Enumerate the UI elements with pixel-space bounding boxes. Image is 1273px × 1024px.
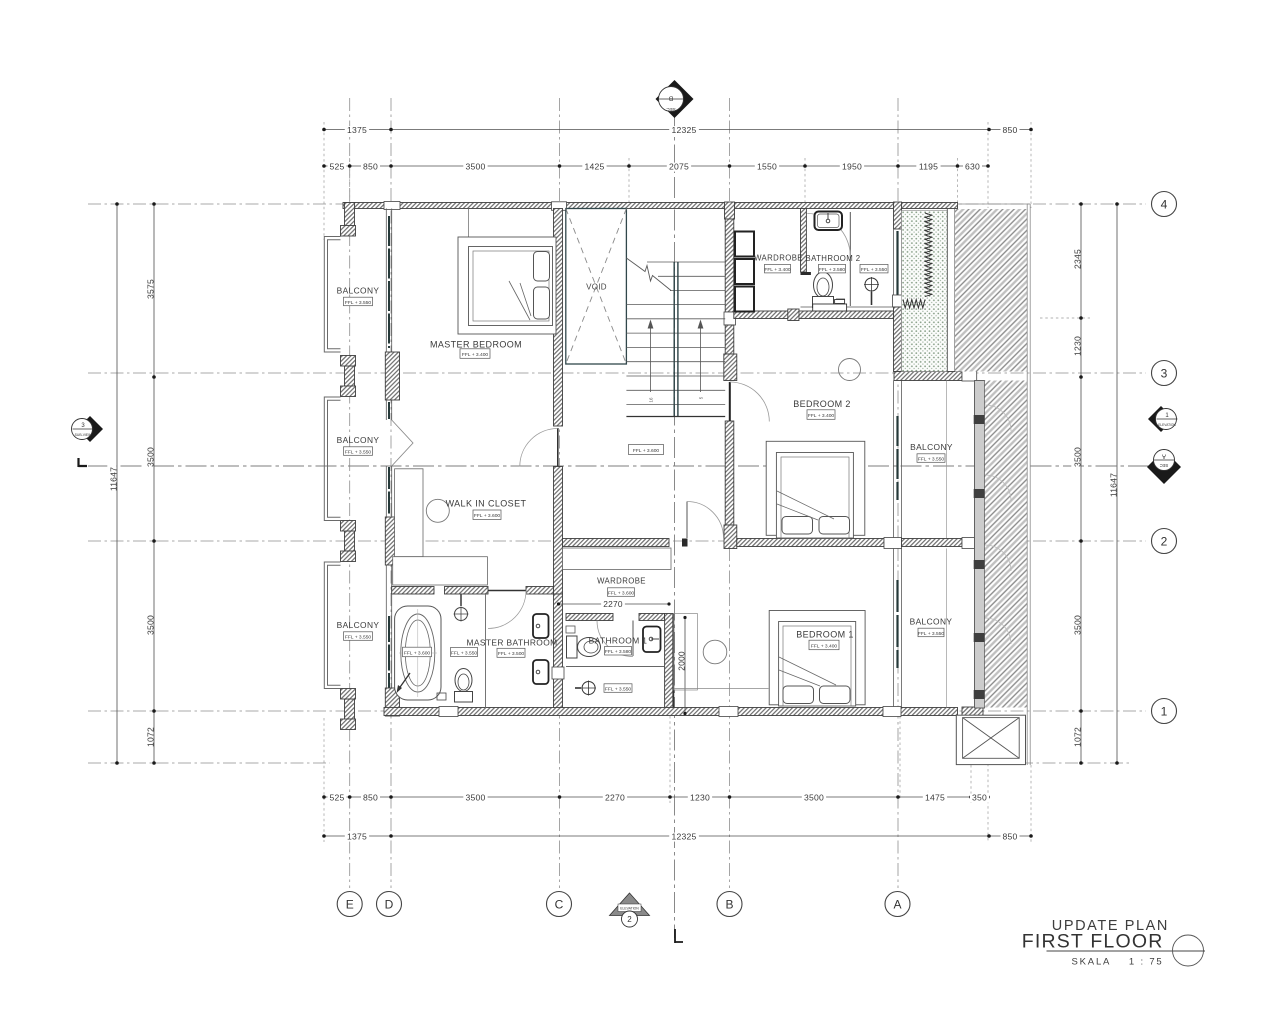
svg-text:1: 1: [1161, 704, 1168, 718]
svg-text:3575: 3575: [146, 279, 156, 299]
svg-text:A: A: [1162, 453, 1166, 459]
svg-text:FFL + 3.550: FFL + 3.550: [345, 300, 372, 306]
svg-text:3500: 3500: [1073, 447, 1083, 467]
svg-text:3500: 3500: [1073, 615, 1083, 635]
svg-text:FFL + 3.600: FFL + 3.600: [474, 513, 501, 519]
svg-text:ELEVATION: ELEVATION: [1158, 423, 1176, 427]
svg-text:850: 850: [1003, 831, 1018, 841]
svg-text:11647: 11647: [109, 467, 119, 491]
svg-text:WARDROBE: WARDROBE: [754, 254, 803, 263]
svg-text:11647: 11647: [1109, 473, 1119, 497]
svg-text:FFL + 3.550: FFL + 3.550: [345, 634, 372, 640]
svg-text:MASTER BATHROOM: MASTER BATHROOM: [467, 638, 558, 648]
svg-text:1425: 1425: [585, 161, 605, 171]
svg-text:12325: 12325: [672, 831, 697, 841]
svg-text:B: B: [669, 95, 673, 102]
svg-text:1375: 1375: [347, 831, 367, 841]
svg-text:SEC: SEC: [1160, 463, 1169, 468]
svg-text:525: 525: [330, 161, 345, 171]
svg-text:1072: 1072: [1073, 727, 1083, 747]
svg-text:2000: 2000: [677, 651, 687, 671]
svg-text:3: 3: [1161, 366, 1168, 380]
svg-text:3500: 3500: [466, 161, 486, 171]
svg-text:16: 16: [649, 397, 654, 403]
svg-text:ELEVATION: ELEVATION: [620, 907, 639, 911]
svg-text:BEDROOM 2: BEDROOM 2: [793, 399, 851, 409]
svg-text:FFL + 3.550: FFL + 3.550: [861, 267, 888, 273]
svg-text:850: 850: [1003, 125, 1018, 135]
svg-text:2: 2: [1161, 534, 1168, 548]
svg-text:VOID: VOID: [586, 283, 607, 292]
svg-text:BATHROOM 1: BATHROOM 1: [589, 636, 648, 646]
svg-text:A: A: [893, 897, 901, 911]
svg-text:12325: 12325: [672, 125, 697, 135]
svg-text:E: E: [346, 897, 354, 911]
svg-text:850: 850: [363, 161, 378, 171]
svg-text:FFL + 3.400: FFL + 3.400: [462, 352, 489, 358]
svg-text:FFL + 3.400: FFL + 3.400: [811, 643, 838, 649]
svg-text:BALCONY: BALCONY: [910, 617, 953, 627]
svg-text:1195: 1195: [919, 161, 938, 171]
svg-text:BALCONY: BALCONY: [910, 442, 953, 452]
svg-text:2: 2: [627, 915, 632, 924]
svg-text:1475: 1475: [925, 792, 945, 802]
svg-text:2270: 2270: [605, 792, 625, 802]
svg-text:FIRST FLOOR: FIRST FLOOR: [1022, 931, 1164, 953]
svg-text:SEC: SEC: [666, 107, 676, 112]
svg-text:BATHROOM 2: BATHROOM 2: [806, 254, 861, 263]
svg-text:FFL + 3.400: FFL + 3.400: [764, 267, 791, 273]
svg-text:630: 630: [965, 161, 980, 171]
svg-text:WALK IN CLOSET: WALK IN CLOSET: [446, 499, 527, 509]
svg-text:1950: 1950: [842, 161, 862, 171]
svg-text:1072: 1072: [146, 727, 156, 747]
svg-text:3500: 3500: [804, 792, 824, 802]
svg-text:FFL + 3.500: FFL + 3.500: [498, 651, 525, 657]
svg-text:BEDROOM 1: BEDROOM 1: [796, 630, 854, 640]
svg-text:BALCONY: BALCONY: [337, 620, 380, 630]
svg-text:3500: 3500: [146, 615, 156, 635]
svg-text:FFL + 3.580: FFL + 3.580: [819, 267, 846, 273]
svg-text:FFL + 3.600: FFL + 3.600: [633, 448, 660, 454]
svg-text:FFL + 3.550: FFL + 3.550: [918, 631, 945, 637]
svg-text:B: B: [725, 897, 733, 911]
svg-text:2270: 2270: [603, 599, 623, 609]
svg-text:BALCONY: BALCONY: [337, 435, 380, 445]
svg-text:FFL + 3.550: FFL + 3.550: [918, 456, 945, 462]
svg-text:MASTER BEDROOM: MASTER BEDROOM: [430, 340, 522, 350]
svg-text:525: 525: [330, 792, 345, 802]
svg-text:1230: 1230: [690, 792, 710, 802]
svg-text:3500: 3500: [146, 447, 156, 467]
svg-text:SKALA 1 : 75: SKALA 1 : 75: [1072, 957, 1164, 968]
svg-text:1375: 1375: [347, 125, 367, 135]
svg-text:5: 5: [699, 396, 704, 399]
svg-text:2075: 2075: [669, 161, 689, 171]
svg-text:FFL + 3.580: FFL + 3.580: [605, 649, 632, 655]
svg-text:3500: 3500: [466, 792, 486, 802]
svg-text:FFL + 3.600: FFL + 3.600: [608, 590, 635, 596]
svg-text:SUB-VIEW: SUB-VIEW: [75, 433, 93, 437]
svg-text:WARDROBE: WARDROBE: [597, 577, 646, 586]
svg-text:1550: 1550: [757, 161, 777, 171]
svg-text:FFL + 3.600: FFL + 3.600: [404, 650, 431, 656]
svg-text:C: C: [555, 897, 564, 911]
svg-text:2345: 2345: [1073, 249, 1083, 269]
svg-text:FFL + 3.400: FFL + 3.400: [808, 413, 835, 419]
svg-text:FFL + 3.550: FFL + 3.550: [451, 650, 478, 656]
svg-text:4: 4: [1161, 197, 1168, 211]
svg-text:BALCONY: BALCONY: [337, 286, 380, 296]
svg-text:D: D: [385, 897, 394, 911]
svg-text:1230: 1230: [1073, 336, 1083, 356]
svg-text:350: 350: [972, 792, 987, 802]
svg-text:850: 850: [363, 792, 378, 802]
svg-text:FFL + 3.550: FFL + 3.550: [345, 449, 372, 455]
svg-text:FFL + 3.550: FFL + 3.550: [605, 686, 632, 692]
